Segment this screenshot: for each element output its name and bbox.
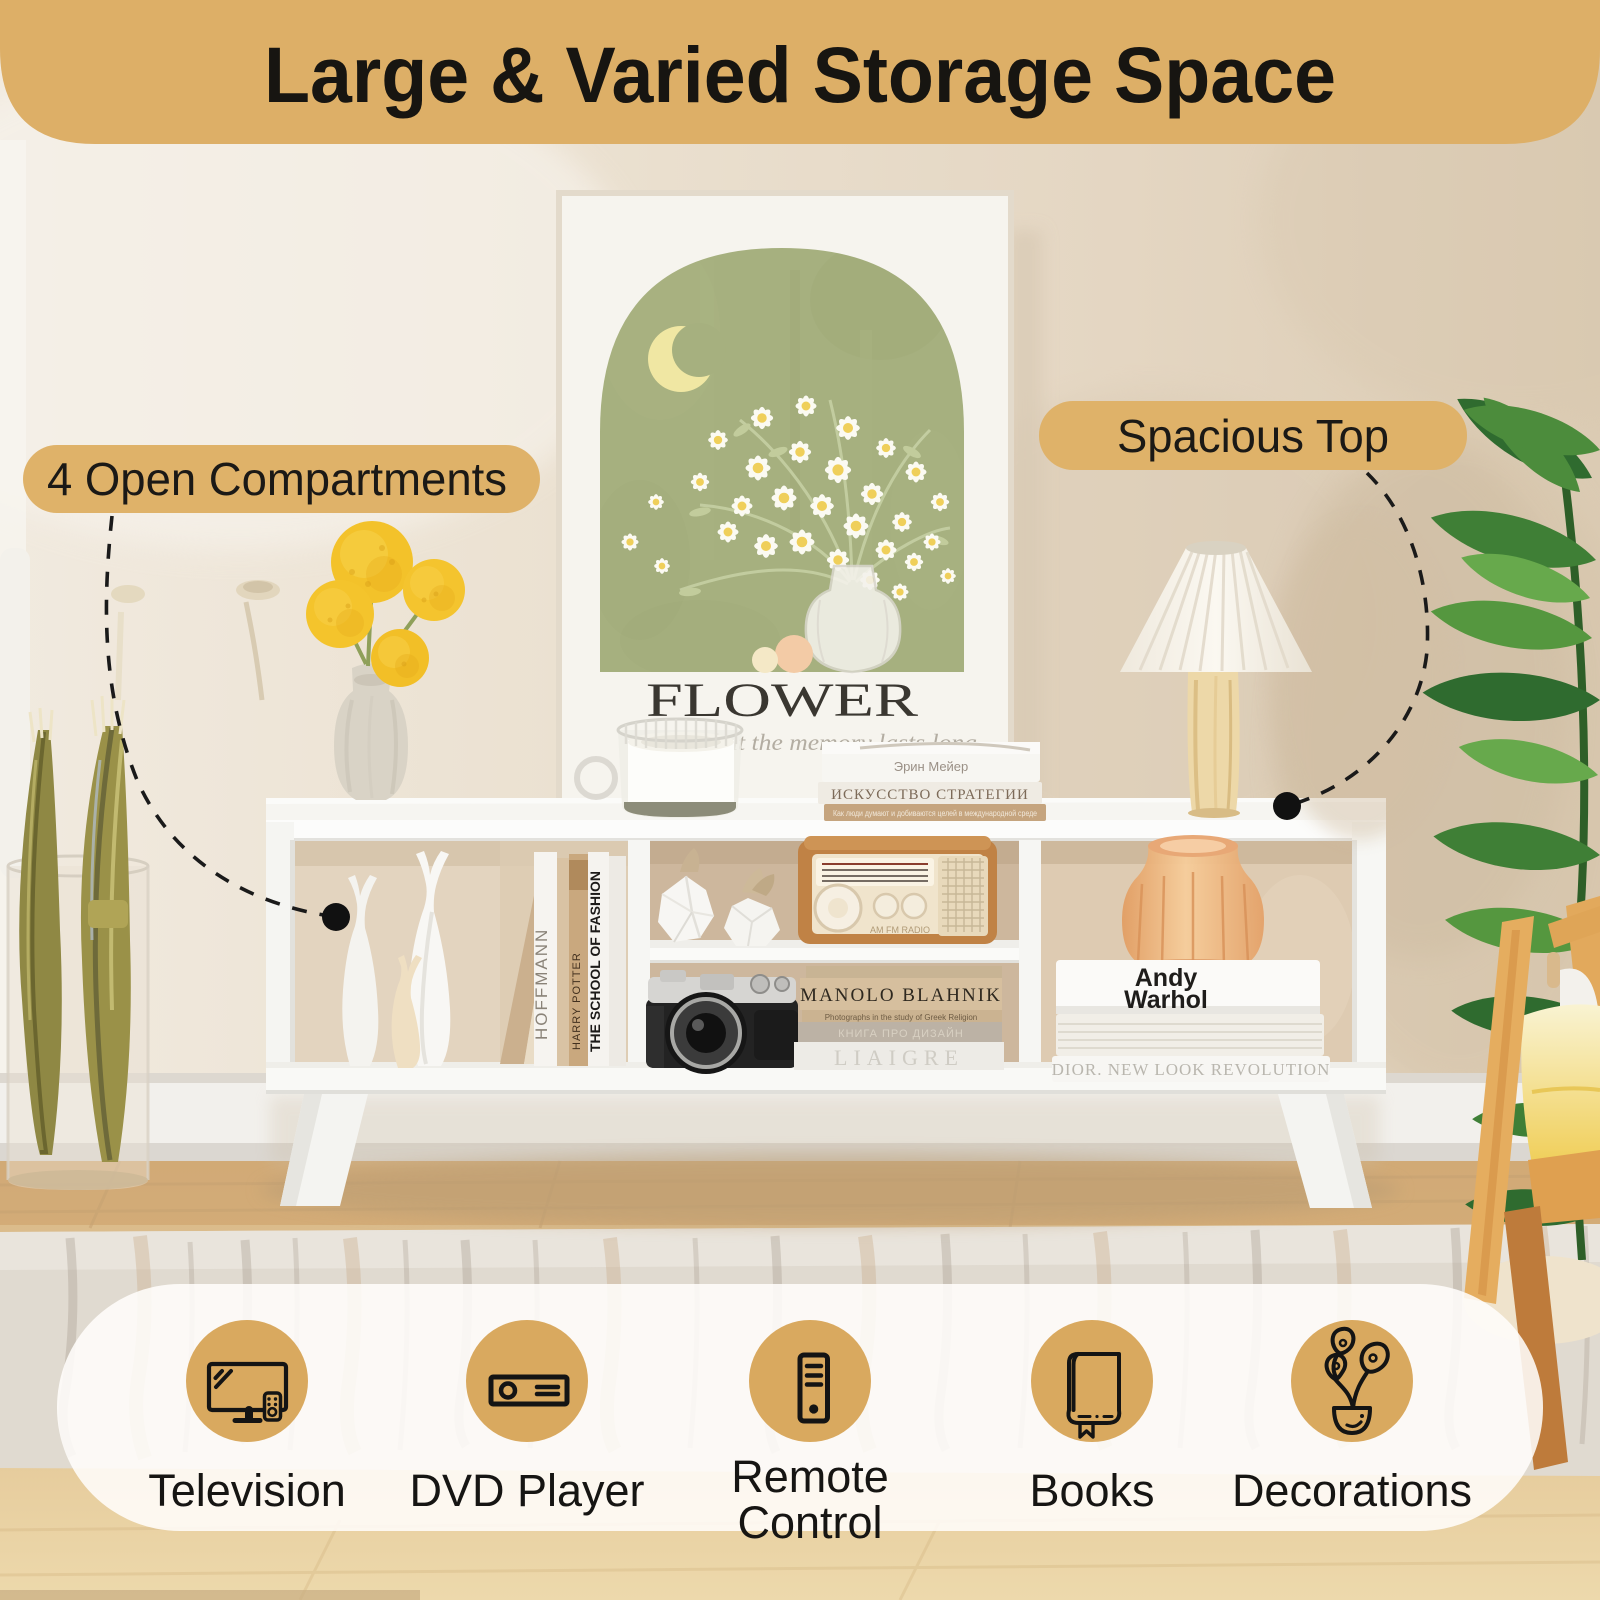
svg-text:Warhol: Warhol bbox=[1124, 986, 1208, 1014]
svg-text:Control: Control bbox=[737, 1497, 882, 1548]
svg-text:Large & Varied Storage Space: Large & Varied Storage Space bbox=[264, 30, 1336, 119]
svg-text:Decorations: Decorations bbox=[1232, 1465, 1472, 1516]
svg-text:Books: Books bbox=[1029, 1465, 1154, 1516]
svg-text:THE SCHOOL OF FASHION: THE SCHOOL OF FASHION bbox=[587, 871, 603, 1052]
svg-text:DIOR. NEW LOOK REVOLUTION: DIOR. NEW LOOK REVOLUTION bbox=[1052, 1060, 1331, 1079]
svg-text:ИСКУССТВО СТРАТЕГИИ: ИСКУССТВО СТРАТЕГИИ bbox=[831, 787, 1029, 803]
svg-text:HOFFMANN: HOFFMANN bbox=[532, 928, 551, 1040]
svg-text:MANOLO BLAHNIK: MANOLO BLAHNIK bbox=[800, 985, 1002, 1006]
svg-text:Remote: Remote bbox=[731, 1451, 889, 1502]
svg-text:Photographs in the study of Gr: Photographs in the study of Greek Religi… bbox=[825, 1013, 978, 1022]
svg-text:4 Open Compartments: 4 Open Compartments bbox=[47, 453, 507, 505]
svg-text:LIAIGRE: LIAIGRE bbox=[834, 1045, 964, 1070]
svg-text:Television: Television bbox=[148, 1465, 346, 1516]
svg-text:Эрин Мейер: Эрин Мейер bbox=[894, 759, 969, 774]
svg-text:AM FM RADIO: AM FM RADIO bbox=[870, 925, 930, 935]
svg-text:Spacious Top: Spacious Top bbox=[1117, 410, 1389, 462]
svg-text:HARRY POTTER: HARRY POTTER bbox=[571, 952, 583, 1050]
svg-text:DVD Player: DVD Player bbox=[409, 1465, 644, 1516]
svg-text:Как люди думают и добиваются ц: Как люди думают и добиваются целей в меж… bbox=[833, 809, 1037, 818]
svg-text:КНИГА ПРО ДИЗАЙН: КНИГА ПРО ДИЗАЙН bbox=[838, 1027, 964, 1040]
